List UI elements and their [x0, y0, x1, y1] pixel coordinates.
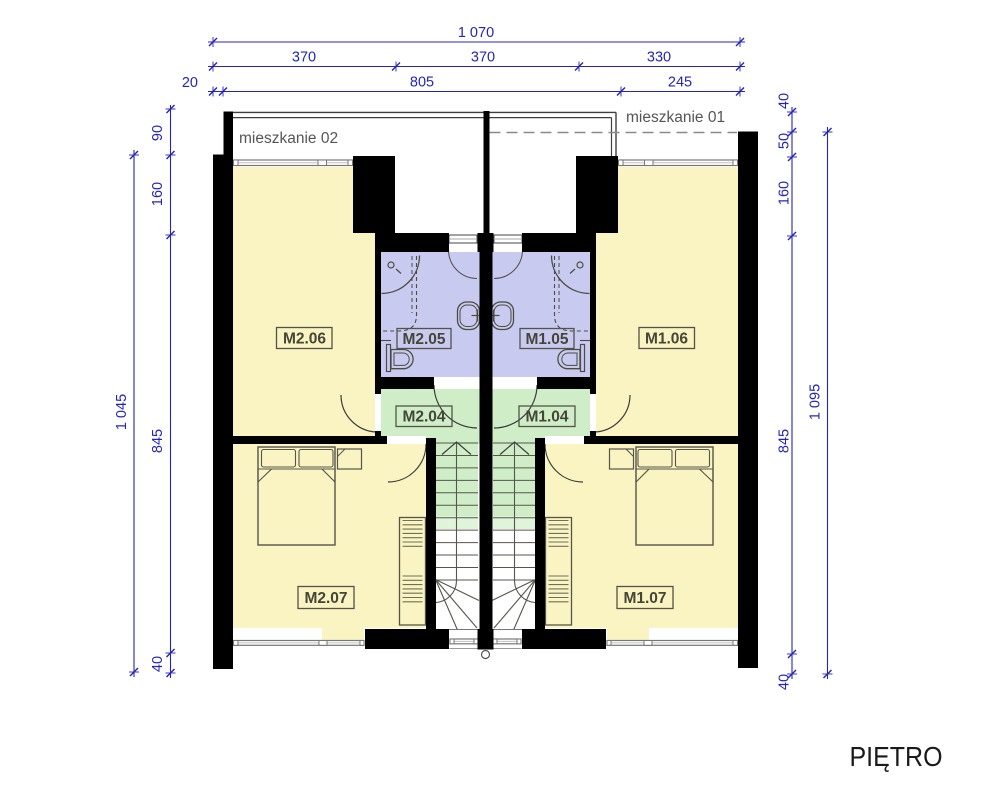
svg-text:90: 90: [150, 125, 166, 141]
svg-text:M1.07: M1.07: [623, 590, 666, 607]
svg-text:370: 370: [292, 50, 316, 66]
svg-text:40: 40: [777, 674, 793, 690]
svg-text:245: 245: [668, 75, 692, 91]
svg-text:160: 160: [777, 181, 793, 205]
svg-text:50: 50: [777, 133, 793, 149]
svg-text:40: 40: [777, 93, 793, 109]
svg-text:40: 40: [150, 656, 166, 672]
svg-text:330: 330: [647, 50, 671, 66]
svg-text:mieszkanie 01: mieszkanie 01: [626, 109, 725, 126]
svg-text:1 070: 1 070: [458, 25, 494, 41]
svg-text:M2.07: M2.07: [304, 590, 347, 607]
svg-text:1 045: 1 045: [114, 394, 130, 430]
svg-text:mieszkanie 02: mieszkanie 02: [239, 130, 338, 147]
svg-text:20: 20: [182, 75, 198, 91]
svg-text:M2.04: M2.04: [402, 409, 445, 426]
svg-text:M2.06: M2.06: [283, 331, 326, 348]
svg-text:M2.05: M2.05: [402, 331, 445, 348]
svg-text:845: 845: [777, 429, 793, 453]
svg-text:805: 805: [410, 75, 434, 91]
svg-text:M1.05: M1.05: [525, 331, 568, 348]
svg-text:M1.04: M1.04: [525, 409, 568, 426]
svg-text:M1.06: M1.06: [645, 331, 688, 348]
svg-text:PIĘTRO: PIĘTRO: [850, 741, 943, 772]
svg-text:160: 160: [150, 182, 166, 206]
svg-text:370: 370: [471, 50, 495, 66]
svg-text:1 095: 1 095: [808, 384, 824, 420]
svg-text:845: 845: [150, 429, 166, 453]
